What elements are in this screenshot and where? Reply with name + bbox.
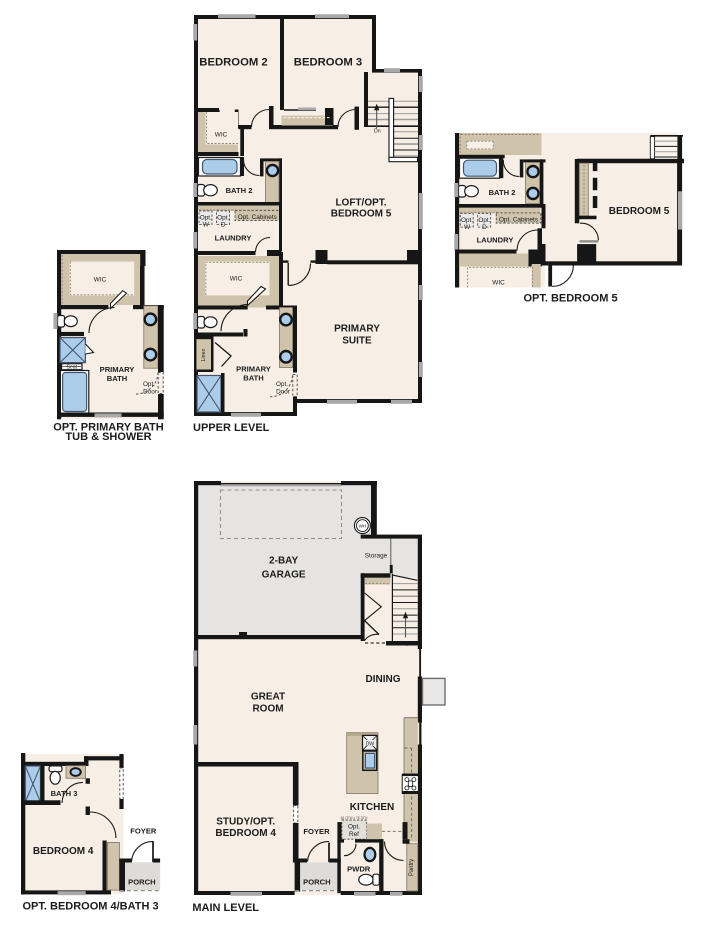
svg-text:BEDROOM 2: BEDROOM 2 <box>199 57 267 69</box>
svg-text:LAUNDRY: LAUNDRY <box>477 236 514 245</box>
svg-text:MAIN LEVEL: MAIN LEVEL <box>192 902 259 914</box>
svg-text:PWDR: PWDR <box>347 865 371 874</box>
svg-text:Linen: Linen <box>201 349 207 362</box>
svg-text:PORCH: PORCH <box>303 878 330 887</box>
svg-text:PRIMARY: PRIMARY <box>334 324 380 335</box>
svg-text:LAUNDRY: LAUNDRY <box>215 234 252 243</box>
svg-text:WIC: WIC <box>492 280 505 287</box>
svg-text:Opt.: Opt. <box>276 381 288 388</box>
svg-text:Dn: Dn <box>374 128 381 134</box>
svg-text:Opt.: Opt. <box>348 824 360 831</box>
svg-text:Opt. Cabinets: Opt. Cabinets <box>238 214 277 221</box>
svg-text:BEDROOM 4: BEDROOM 4 <box>33 846 94 857</box>
svg-text:DINING: DINING <box>366 674 401 685</box>
svg-text:KITCHEN: KITCHEN <box>350 802 394 813</box>
svg-text:Opt. Cabinets: Opt. Cabinets <box>499 216 538 223</box>
svg-text:Opt.: Opt. <box>200 214 212 221</box>
svg-text:UPPER LEVEL: UPPER LEVEL <box>193 422 270 434</box>
svg-text:D: D <box>482 224 487 231</box>
svg-text:Opt.: Opt. <box>143 381 155 388</box>
svg-text:FOYER: FOYER <box>130 826 157 835</box>
svg-text:BATH 2: BATH 2 <box>489 188 516 197</box>
svg-text:BATH: BATH <box>107 374 128 383</box>
svg-text:FOYER: FOYER <box>303 827 330 836</box>
svg-text:STUDY/OPT.: STUDY/OPT. <box>216 817 275 828</box>
svg-text:BATH 2: BATH 2 <box>226 186 253 195</box>
svg-text:Opt.: Opt. <box>461 217 473 224</box>
svg-text:BEDROOM 3: BEDROOM 3 <box>294 57 362 69</box>
svg-text:DW: DW <box>366 742 375 748</box>
svg-text:Door: Door <box>143 389 158 396</box>
svg-text:WIC: WIC <box>215 132 228 139</box>
svg-text:BEDROOM 4: BEDROOM 4 <box>215 828 276 839</box>
svg-text:BATH: BATH <box>243 374 264 383</box>
svg-text:36.75"W x 78.75"H: 36.75"W x 78.75"H <box>341 816 369 820</box>
svg-text:LOFT/OPT.: LOFT/OPT. <box>335 198 386 209</box>
svg-text:Pantry: Pantry <box>409 859 415 876</box>
svg-text:Ref: Ref <box>349 831 359 838</box>
svg-text:OPT. BEDROOM 5: OPT. BEDROOM 5 <box>523 293 617 305</box>
svg-text:W: W <box>203 221 210 228</box>
svg-text:WIC: WIC <box>230 276 243 283</box>
svg-text:WIC: WIC <box>94 277 107 284</box>
svg-text:OPT. BEDROOM 4/BATH 3: OPT. BEDROOM 4/BATH 3 <box>23 901 159 913</box>
svg-text:WH: WH <box>359 523 367 528</box>
svg-text:GREAT: GREAT <box>251 692 285 703</box>
svg-text:Seat: Seat <box>66 365 77 371</box>
svg-text:TUB & SHOWER: TUB & SHOWER <box>65 431 151 443</box>
svg-text:SUITE: SUITE <box>342 336 372 347</box>
svg-text:PORCH: PORCH <box>128 878 155 887</box>
svg-text:Opt.: Opt. <box>478 217 490 224</box>
svg-text:BEDROOM 5: BEDROOM 5 <box>331 209 392 220</box>
svg-text:Storage: Storage <box>365 553 388 560</box>
svg-text:PRIMARY: PRIMARY <box>100 365 135 374</box>
svg-text:Door: Door <box>276 389 291 396</box>
svg-text:BEDROOM 5: BEDROOM 5 <box>609 206 670 217</box>
svg-text:Opt.: Opt. <box>217 214 229 221</box>
svg-text:2-BAY: 2-BAY <box>269 556 298 567</box>
svg-text:D: D <box>221 221 226 228</box>
svg-text:GARAGE: GARAGE <box>262 570 306 581</box>
svg-text:ROOM: ROOM <box>252 704 283 715</box>
svg-text:W: W <box>464 224 471 231</box>
svg-text:PRIMARY: PRIMARY <box>236 365 271 374</box>
